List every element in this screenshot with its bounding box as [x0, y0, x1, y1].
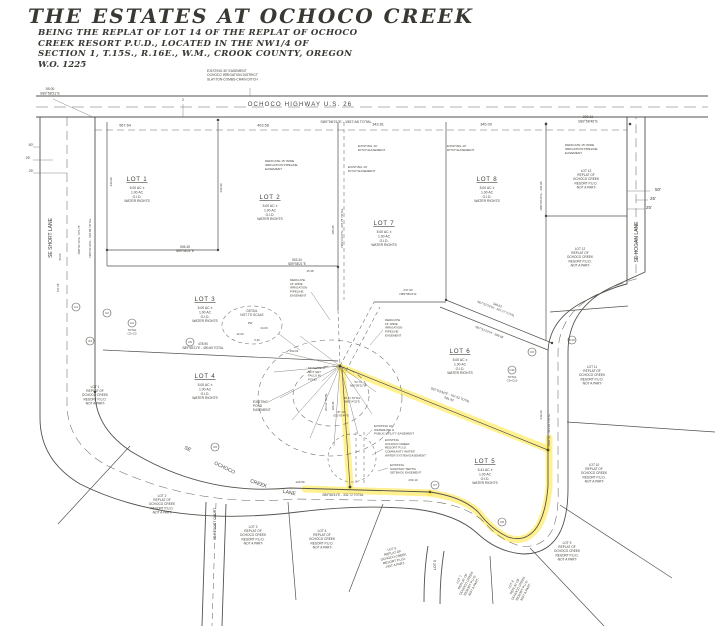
road-lot6-label: LOT 6 — [433, 560, 437, 570]
dim-192-02: 192.02 — [290, 349, 299, 353]
dim-233-13: 233.13 — [408, 478, 418, 482]
adjacent-lot-3-label: LOT 3REPLAT OFOCHOCO CREEKRESORT P.U.D.-… — [240, 525, 267, 545]
bearing-n00-23: N00°23'27"E - 307.75 TOTAL — [340, 208, 344, 247]
road-se-ochoco-creek-lane-label-1: SE — [183, 445, 192, 454]
bearing-503-34: 503.34S89°58'21"E — [288, 258, 306, 266]
svg-text:C9: C9 — [530, 350, 534, 354]
plat-drawing: OCHOCO HIGHWAY U.S. 26S89°58'21"E - 1557… — [0, 0, 720, 626]
lot-8-label: LOT 85.00 AC ±1.00 ACO.I.D.WATER RIGHTS — [474, 176, 500, 203]
lot-6-label: LOT 65.00 AC ±1.00 ACO.I.D.WATER RIGHTS — [447, 348, 473, 375]
road-se-ochoco-creek-lane-label-2: OCHOCO — [213, 460, 236, 475]
road-se-resort-court-label: SE RESORT COURT — [213, 508, 217, 540]
svg-text:C2: C2 — [105, 311, 109, 315]
plat-subtitle-line1: BEING THE REPLAT OF LOT 14 OF THE REPLAT… — [38, 28, 474, 39]
curve-marker-c6: C6 — [211, 443, 219, 451]
hub-easement-links — [338, 302, 380, 371]
dim-15-38: 15.38 — [307, 269, 314, 273]
dim-25-right-b: 25' — [646, 205, 652, 210]
lot-5-label: LOT 55.41 AC ±1.00 ACO.I.D.WATER RIGHTS — [472, 458, 498, 485]
adjacent-lot-5-label: LOT 5REPLAT OFOCHOCO CREEKRESORT P.U.D.-… — [379, 544, 410, 570]
road-se-ochoco-creek-lane-label-3: CREEK — [249, 478, 268, 490]
bearing-237-93: 237.93N89°58'21"E — [399, 288, 416, 296]
road-se-ochoco-creek-lane-label-4: LANE — [282, 489, 297, 498]
bearing-n00-01-29: N00°01'29"E - 618.88 TOTAL — [88, 218, 92, 257]
detail-526: 5.26 — [254, 338, 260, 342]
svg-text:C5: C5 — [188, 340, 192, 344]
dim-25-right-a: 25' — [650, 196, 656, 201]
lot-7-label: LOT 75.00 AC ±1.00 ACO.I.D.WATER RIGHTS — [371, 220, 397, 247]
curve-marker-c9: C9 — [528, 348, 536, 356]
waterline-easement-lines — [356, 432, 364, 486]
svg-text:C6: C6 — [213, 445, 217, 449]
dim-180-95: 180.95 — [331, 225, 335, 235]
work-order-number: W.O. 1225 — [38, 60, 474, 71]
easement-irrigation-topright: DEDICATE 15' WIDEIRRIGATION PIPELINEEASE… — [565, 143, 598, 155]
svg-text:C11: C11 — [509, 368, 515, 372]
adjacent-lot-1-label: LOT 1REPLAT OFOCHOCO CREEKRESORT P.U.D.-… — [82, 385, 109, 405]
detail-note: DETAILNOT TO SCALE — [240, 309, 263, 317]
dim-343-81: 343.81 — [372, 123, 384, 127]
pond-outline — [258, 340, 402, 456]
dim-25-left-a: 25' — [26, 156, 31, 160]
bearing-n00-09: N00°09'34"E - 430.98 — [539, 181, 543, 210]
note-c4-total: TOTALC2+C3 — [127, 328, 136, 336]
stub-road-edges — [424, 546, 444, 604]
easement-ditch-c: EXISTING 10'DITCH EASEMENT — [447, 144, 474, 152]
monument-note: MONUMENTNOT SETFALLS INPOND — [308, 366, 326, 382]
easement-irrigation-topleft: DEDICATE 15' WIDEIRRIGATION PIPELINEEASE… — [265, 159, 298, 171]
map-labels-layer: OCHOCO HIGHWAY U.S. 26S89°58'21"E - 1557… — [26, 69, 661, 605]
plat-subtitle-line3: SECTION 1, T.15S., R.16E., W.M., CROOK C… — [38, 49, 474, 60]
lot-3-label: LOT 35.00 AC ±1.00 ACO.I.D.WATER RIGHTS — [192, 296, 218, 323]
adjacent-lot-7-label: LOT 7REPLAT OFOCHOCO CREEKRESORT P.U.D.-… — [451, 566, 482, 599]
callout-2: 2 — [182, 98, 184, 102]
curve-marker-c5: C5 — [186, 338, 194, 346]
adjacent-lot-8-label: LOT 8REPLAT OFOCHOCO CREEKRESORT P.U.D.-… — [503, 571, 534, 604]
dim-567-64: 567.64 — [119, 124, 131, 128]
dashed-lines — [36, 107, 708, 626]
note-c11-total: TOTALC9+C10 — [507, 375, 518, 383]
curve-marker-c8: C8 — [498, 518, 506, 526]
lot-2-label: LOT 25.00 AC ±1.00 ACO.I.D.WATER RIGHTS — [257, 194, 283, 221]
dim-345-00: 345.00 — [480, 123, 492, 127]
detail-12: 12.00 — [237, 332, 244, 336]
dim-137-18: 137.18 — [56, 283, 60, 292]
svg-text:C7: C7 — [433, 483, 437, 487]
adjacent-lot-13-label: LOT 13REPLAT OFOCHOCO CREEKRESORT P.U.D.… — [573, 169, 600, 189]
detail-pw: PW — [248, 321, 253, 325]
plat-subtitle-line2: CREEK RESORT P.U.D., LOCATED IN THE NW1/… — [38, 39, 474, 50]
bearing-332-72: S89°58'41"E - 332.72 TOTAL — [322, 493, 364, 497]
dim-430-99-b: 430.99 — [219, 183, 223, 193]
lot-lines — [58, 122, 715, 626]
easement-irrigation-center-a: DEDICATE15' WIDEIRRIGATIONPIPELINEEASEME… — [290, 278, 307, 297]
easement-ditch-b: EXISTING 10'DITCH EASEMENT — [348, 165, 375, 173]
adjacent-lot-9-label: LOT 9REPLAT OFOCHOCO CREEKRESORT P.U.D.-… — [554, 541, 581, 561]
lot8-lot6-diagonal-2 — [440, 307, 548, 350]
svg-text:C4: C4 — [130, 321, 134, 325]
bearing-highway-total: S89°58'21"E - 1557.68 TOTAL — [320, 120, 371, 124]
curve-marker-c3: C3 — [86, 337, 94, 345]
road-se-short-lane-label: SE SHORT LANE — [48, 217, 54, 257]
lot3-lot4-line — [103, 350, 338, 361]
adjacent-lot-4-label: LOT 4REPLAT OFOCHOCO CREEKRESORT P.U.D.-… — [309, 529, 336, 549]
dim-50-left: 50' — [29, 143, 34, 147]
easement-septic: EXISTINGSANITARY SEPTICSETBACK EASEMENT — [390, 463, 422, 475]
plat-sheet: OCHOCO HIGHWAY U.S. 26S89°58'21"E - 1557… — [0, 0, 720, 626]
dim-183-38: 183.38 — [331, 401, 335, 410]
svg-text:C8: C8 — [500, 520, 504, 524]
svg-text:C3: C3 — [88, 339, 92, 343]
dim-200-11: 200.11S89°58'46"E — [578, 115, 598, 123]
bearing-n00-01-14: N00°01'14"E - 576.75 — [77, 225, 81, 254]
highlight-marks — [305, 367, 549, 540]
road-ochoco-highway-label: OCHOCO HIGHWAY U.S. 26 — [248, 102, 353, 108]
svg-text:C1: C1 — [74, 305, 78, 309]
adjacent-lot-2-label: LOT 2REPLAT OFOCHOCO CREEKRESORT P.U.D.-… — [149, 494, 176, 514]
easement-waterline: EXISTING 10'WATERLINE &PUBLIC UTILITY EA… — [374, 424, 414, 436]
detail-24: 24.00 — [261, 326, 268, 330]
curve-marker-c7: C7 — [431, 481, 439, 489]
svg-text:C10: C10 — [569, 338, 575, 342]
curve-marker-c10: C10 — [568, 336, 576, 344]
dim-129-59: 129.59 — [295, 480, 305, 484]
dim-263-12: 263.12 TOTAL — [324, 393, 328, 411]
dim-403-58: 403.58 — [257, 124, 269, 128]
easement-community-water: EXISTINGOCHOCO CREEKRESORT P.U.D.COMMUNI… — [385, 438, 426, 457]
dim-430-99-a: 430.99 — [109, 177, 113, 187]
curve-marker-c1: C1 — [72, 303, 80, 311]
title-block: THE ESTATES AT OCHOCO CREEK BEING THE RE… — [28, 4, 474, 71]
lot-4-label: LOT 45.00 AC ±1.00 ACO.I.D.WATER RIGHTS — [192, 373, 218, 400]
easement-ditch-a: EXISTING 10'DITCH EASEMENT — [358, 144, 385, 152]
dim-349-40: 349.40 — [539, 410, 543, 420]
curve-marker-c4: C4 — [128, 319, 136, 327]
curve-marker-c11: C11 — [508, 366, 516, 374]
easement-irrigation-center-b: DEDICATE15' WIDEIRRIGATIONPIPELINEEASEME… — [385, 318, 402, 337]
dim-55-00: 55.00S89°58'21"E — [40, 87, 60, 95]
adjacent-lot-10-label: LOT 10REPLAT OFOCHOCO CREEKRESORT P.U.D.… — [581, 463, 608, 483]
plat-title: THE ESTATES AT OCHOCO CREEK — [28, 4, 474, 28]
bearing-north-431: NORTH - 431.93 TOTAL — [547, 413, 551, 446]
dim-56-00: 56.00 — [58, 253, 62, 260]
dim-25-left-b: 25' — [29, 169, 34, 173]
dim-50-right: 50' — [655, 187, 661, 192]
lot12-lot11-line — [550, 306, 628, 312]
bearing-505-45: 505.45S89°58'21"E — [176, 245, 194, 253]
curve-marker-c2: C2 — [103, 309, 111, 317]
road-se-hogan-lane-label: SE HOGAN LANE — [634, 221, 640, 263]
adjacent-lot-11-label: LOT 11REPLAT OFOCHOCO CREEKRESORT P.U.D.… — [579, 365, 606, 385]
lot-1-label: LOT 15.00 AC ±1.00 ACO.I.D.WATER RIGHTS — [124, 176, 150, 203]
adjacent-lot-12-label: LOT 12REPLAT OFOCHOCO CREEKRESORT P.U.D.… — [567, 247, 594, 267]
dim-45-41: 45.41 TOTALN89°14'32"E — [344, 396, 361, 404]
